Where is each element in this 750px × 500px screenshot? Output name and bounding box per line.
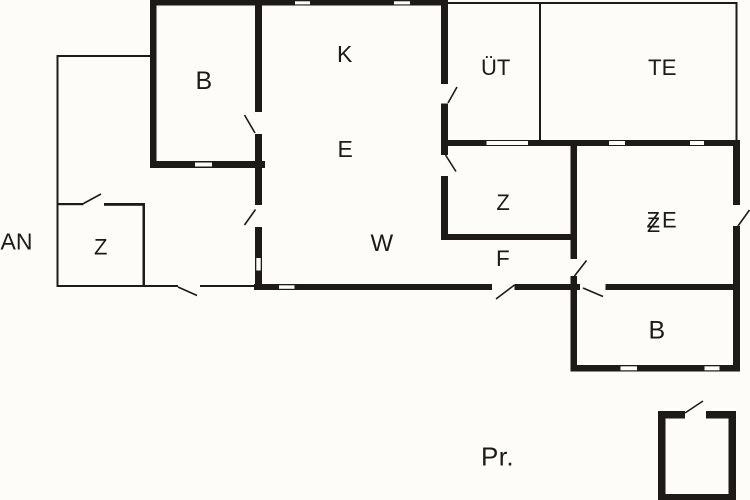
svg-text:TE: TE: [648, 55, 677, 80]
svg-text:B: B: [649, 317, 666, 345]
svg-text:Z: Z: [647, 213, 660, 237]
svg-text:W: W: [371, 230, 394, 257]
svg-text:Pr.: Pr.: [481, 442, 514, 472]
svg-text:K: K: [337, 41, 353, 67]
svg-text:E: E: [662, 208, 677, 233]
svg-text:B: B: [196, 67, 213, 95]
svg-text:Z: Z: [496, 190, 509, 215]
svg-text:Z: Z: [94, 235, 107, 260]
svg-text:ÜT: ÜT: [481, 55, 510, 80]
svg-text:E: E: [338, 136, 353, 162]
svg-text:AN: AN: [1, 229, 33, 255]
svg-text:F: F: [496, 246, 510, 271]
